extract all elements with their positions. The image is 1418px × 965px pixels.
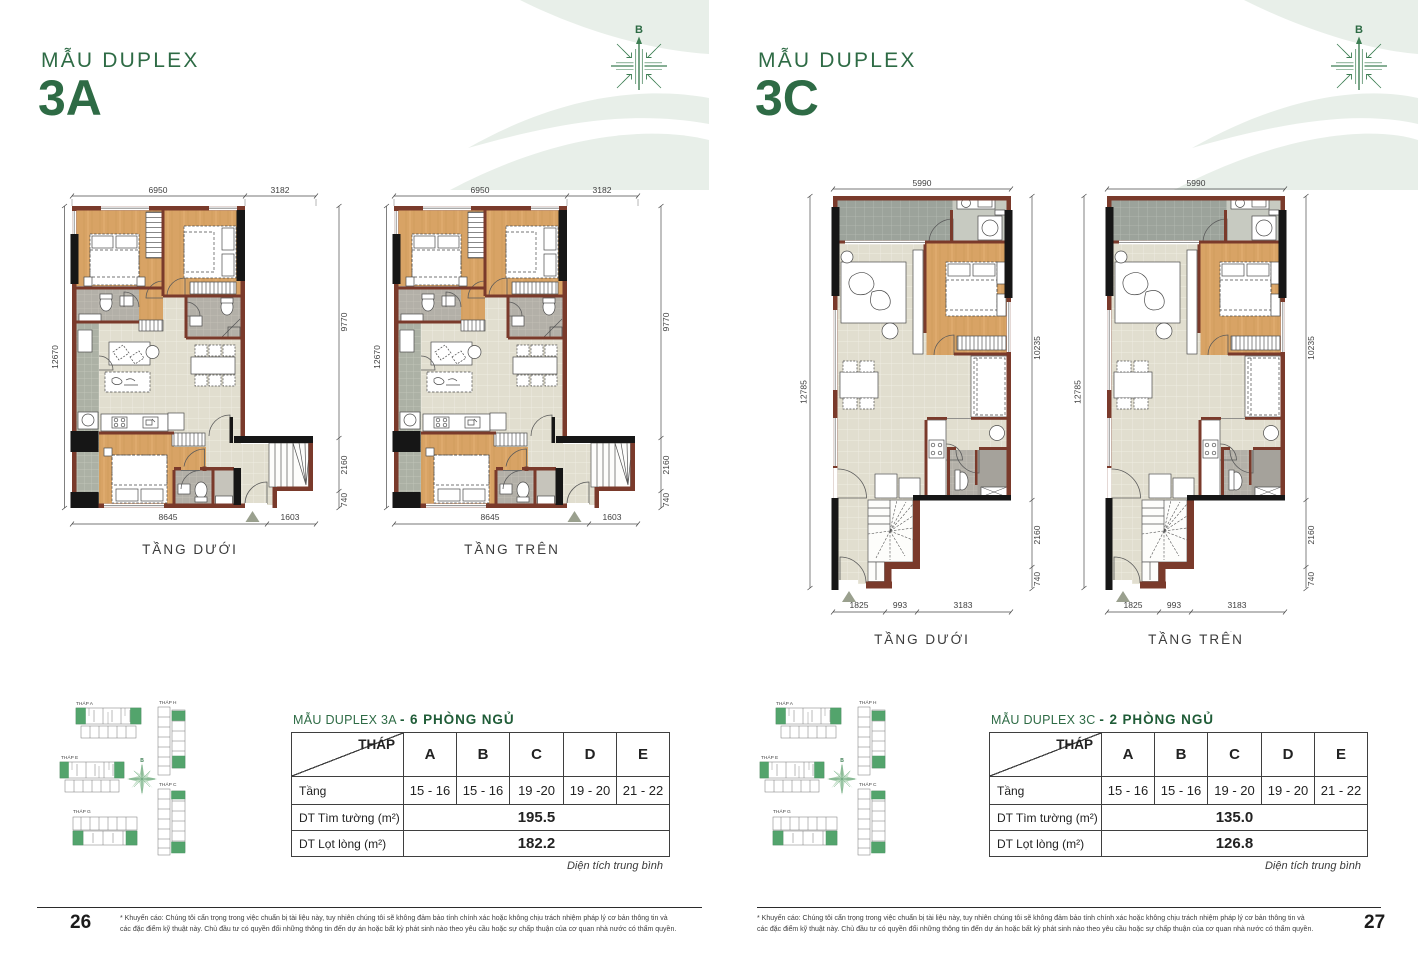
svg-text:THÁP H: THÁP H <box>159 699 177 706</box>
svg-text:B: B <box>1355 24 1363 36</box>
svg-text:THÁP C: THÁP C <box>159 781 177 788</box>
svg-text:THÁP G: THÁP G <box>73 808 91 815</box>
svg-text:THÁP E: THÁP E <box>61 754 78 761</box>
svg-text:1825: 1825 <box>850 600 869 610</box>
svg-text:740: 740 <box>1032 572 1042 586</box>
svg-text:TẦNG DƯỚI: TẦNG DƯỚI <box>874 632 970 647</box>
svg-text:12670: 12670 <box>50 345 60 369</box>
svg-text:2160: 2160 <box>339 455 349 474</box>
svg-text:1603: 1603 <box>281 512 300 522</box>
svg-text:TẦNG TRÊN: TẦNG TRÊN <box>464 542 560 557</box>
svg-text:993: 993 <box>893 600 907 610</box>
svg-text:TẦNG DƯỚI: TẦNG DƯỚI <box>142 542 238 557</box>
svg-text:B: B <box>140 758 144 764</box>
svg-text:THÁP A: THÁP A <box>76 700 94 707</box>
svg-text:9770: 9770 <box>339 312 349 331</box>
svg-text:TẦNG TRÊN: TẦNG TRÊN <box>1148 632 1244 647</box>
svg-text:2160: 2160 <box>1032 525 1042 544</box>
svg-text:12785: 12785 <box>799 380 809 404</box>
svg-text:3183: 3183 <box>954 600 973 610</box>
svg-text:740: 740 <box>339 493 349 507</box>
svg-text:6950: 6950 <box>149 185 168 195</box>
svg-text:5990: 5990 <box>913 178 932 188</box>
svg-text:B: B <box>635 24 643 36</box>
svg-text:3182: 3182 <box>271 185 290 195</box>
svg-text:8645: 8645 <box>159 512 178 522</box>
svg-text:10235: 10235 <box>1032 336 1042 360</box>
